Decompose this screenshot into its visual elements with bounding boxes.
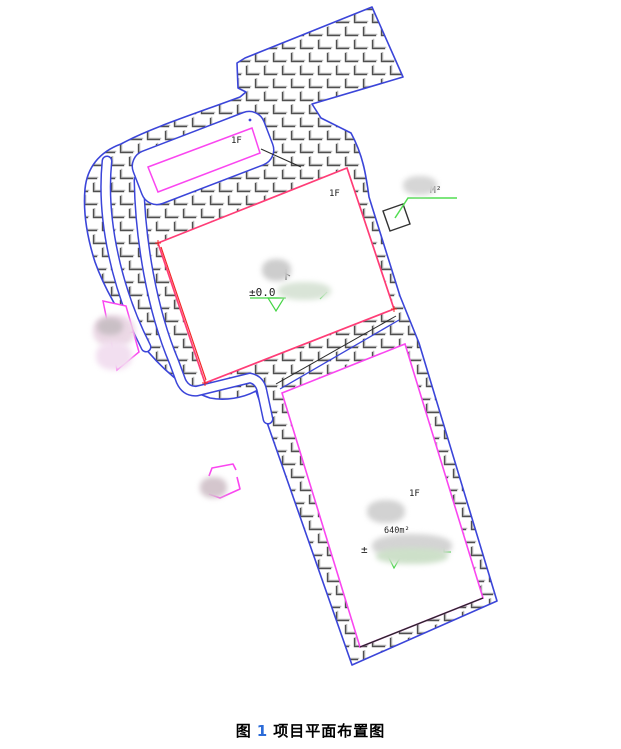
gate-square xyxy=(383,204,410,231)
bracket-structure xyxy=(209,464,240,498)
caption-title: 项目平面布置图 xyxy=(273,722,385,740)
caption-prefix: 图 xyxy=(236,722,252,740)
floor-label-building1: 1F xyxy=(329,189,340,199)
site-plan-drawing: 1F 1F 1F M² ±0.0 ± 640m² xyxy=(0,0,621,749)
floor-label-building2: 1F xyxy=(409,489,420,499)
figure-caption: 图1项目平面布置图 xyxy=(0,720,621,741)
elevation-text-building1: ±0.0 xyxy=(249,286,276,299)
caption-number: 1 xyxy=(252,722,273,740)
figure-page: 1F 1F 1F M² ±0.0 ± 640m² 图1项目平面布置图 xyxy=(0,0,621,749)
elevation-text-building2: ± xyxy=(361,543,368,556)
area-unit-label: M² xyxy=(430,185,441,196)
survey-dot xyxy=(249,119,252,122)
floor-label-annex: 1F xyxy=(231,136,242,146)
area-value-label: 640m² xyxy=(384,526,410,536)
